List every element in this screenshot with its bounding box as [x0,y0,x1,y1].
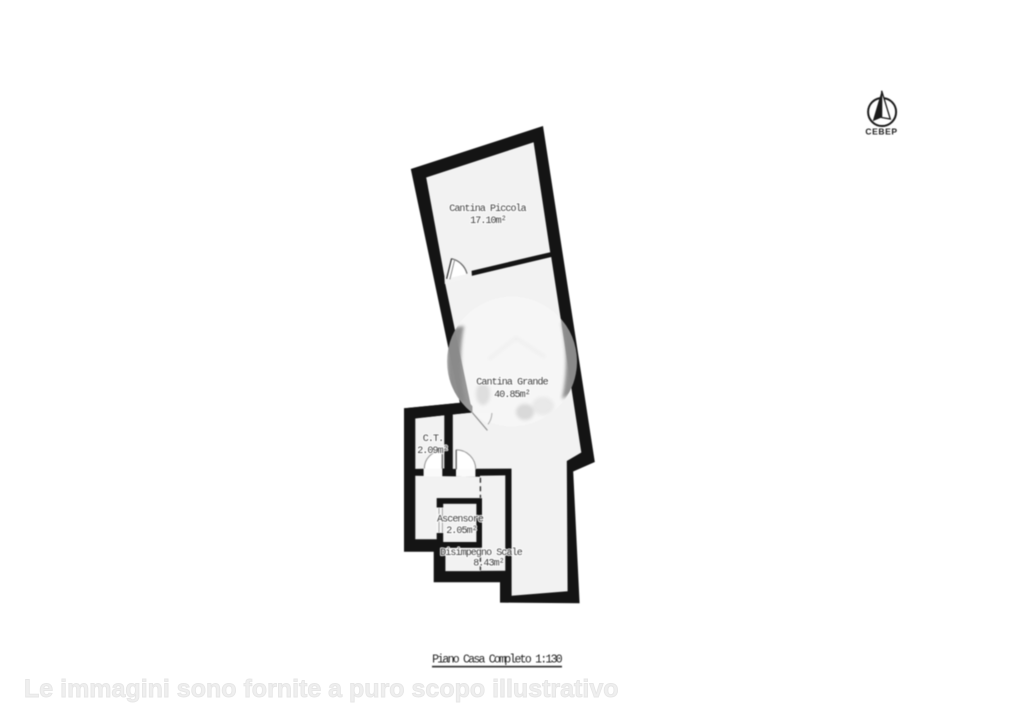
svg-text:17.10m²: 17.10m² [470,216,506,227]
svg-text:Cantina Grande: Cantina Grande [476,377,548,389]
svg-text:Ascensore: Ascensore [437,515,484,526]
svg-text:2.05m²: 2.05m² [446,526,477,537]
svg-text:СЕВЕР: СЕВЕР [865,127,897,137]
svg-text:Piano Casa Completo 1:130: Piano Casa Completo 1:130 [432,653,563,666]
svg-text:Cantina Piccola: Cantina Piccola [449,203,526,215]
svg-text:40.85m²: 40.85m² [494,390,530,401]
svg-text:8.43m²: 8.43m² [473,559,504,570]
svg-text:C.T.: C.T. [423,434,443,445]
svg-text:Disimpegno Scale: Disimpegno Scale [440,547,523,559]
svg-text:2.09m²: 2.09m² [417,446,448,457]
